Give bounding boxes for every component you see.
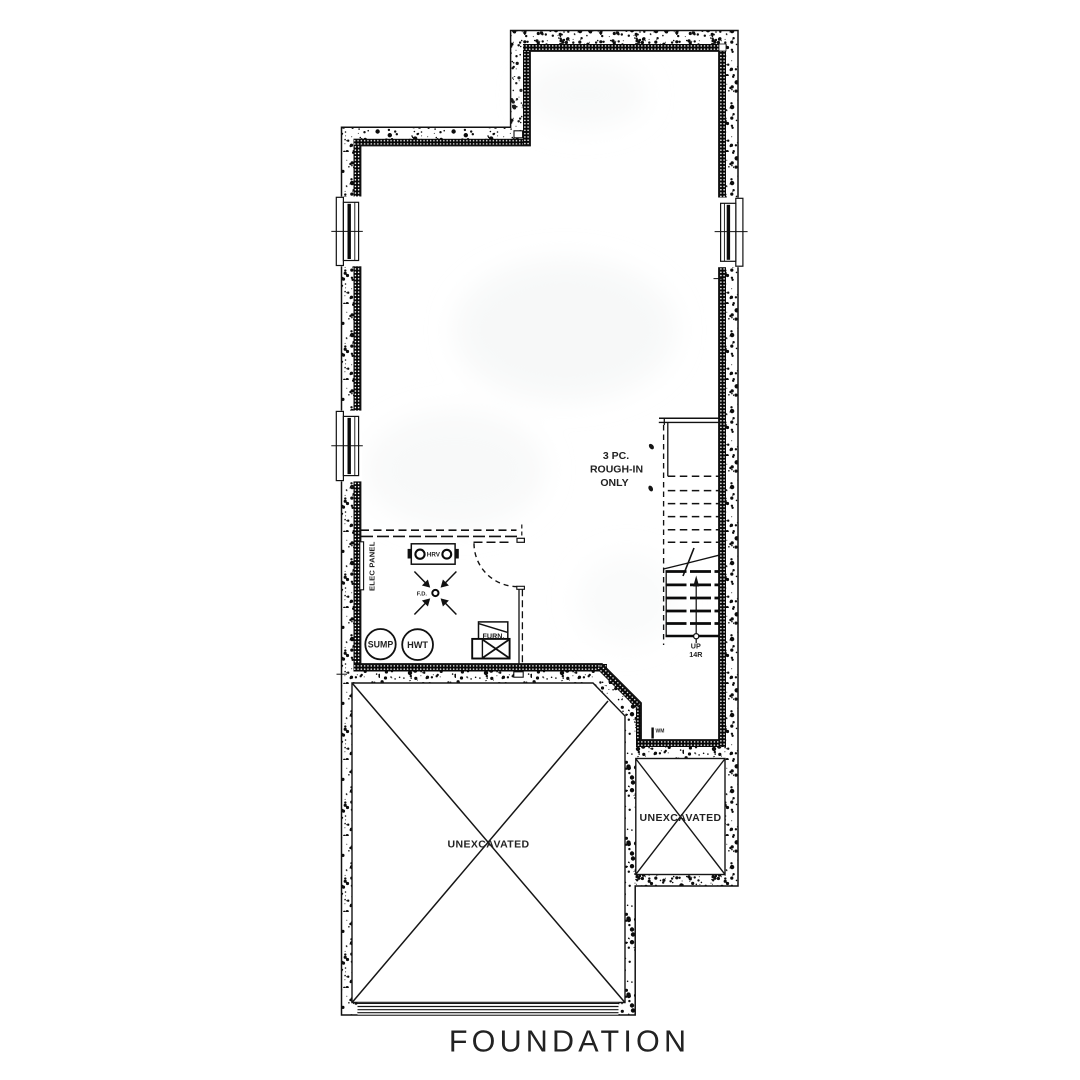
svg-text:ONLY: ONLY: [600, 477, 628, 489]
svg-text:SUMP: SUMP: [368, 640, 394, 650]
svg-text:3 PC.: 3 PC.: [603, 450, 629, 462]
svg-text:HWT: HWT: [407, 640, 428, 650]
svg-text:WM: WM: [656, 729, 665, 735]
svg-text:HRV: HRV: [427, 552, 441, 559]
svg-text:ROUGH-IN: ROUGH-IN: [590, 464, 643, 476]
svg-text:UNEXCAVATED: UNEXCAVATED: [640, 812, 722, 824]
svg-text:ELEC PANEL: ELEC PANEL: [368, 541, 377, 591]
svg-text:FURN.: FURN.: [483, 631, 505, 640]
svg-text:F.D.: F.D.: [417, 592, 428, 598]
svg-text:14R: 14R: [689, 650, 703, 659]
svg-text:UNEXCAVATED: UNEXCAVATED: [448, 839, 530, 851]
svg-text:FOUNDATION: FOUNDATION: [449, 1025, 690, 1059]
